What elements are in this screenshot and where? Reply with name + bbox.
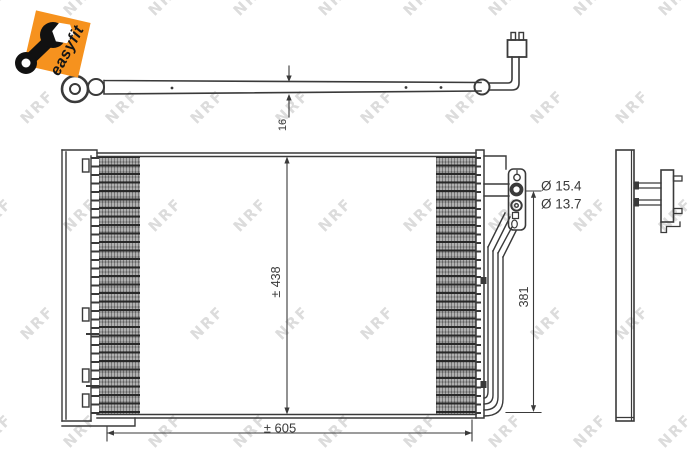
core-width-label: ± 605: [264, 421, 296, 436]
condenser-front-view: [62, 150, 541, 441]
pipe-bend: [489, 57, 519, 90]
dimension-core-height: [284, 157, 289, 415]
port-13-7: [511, 200, 521, 210]
right-tank: [476, 150, 487, 418]
side-view-block: [661, 170, 674, 222]
port-15-4: [512, 185, 522, 195]
port-bottom-diameter-label: Ø 13.7: [541, 197, 582, 212]
core-height-label: ± 438: [269, 266, 283, 297]
top-pipe-assembly: [62, 33, 527, 118]
bleed-valve: [514, 174, 520, 180]
side-height-label: 381: [517, 287, 531, 308]
side-pipes: [484, 213, 516, 416]
left-bracket: [62, 150, 135, 426]
dimension-pipe-diameter: [286, 66, 291, 117]
port-connection-lines: [484, 156, 509, 196]
pipe-diameter-label: 16: [277, 119, 289, 131]
pipe-joint: [475, 80, 490, 95]
pipe-connector-block: [508, 40, 527, 57]
condenser-side-view: [616, 150, 682, 421]
technical-drawing-canvas: NRFNRFNRFNRFNRFNRFNRFNRFNRFNRFNRFNRFNRFN…: [0, 0, 699, 459]
easyfit-badge: easyfit: [0, 0, 115, 110]
port-top-diameter-label: Ø 15.4: [541, 179, 582, 194]
side-view-foot: [661, 222, 680, 233]
pipe-body: [104, 81, 481, 95]
connector-block: [509, 169, 526, 230]
